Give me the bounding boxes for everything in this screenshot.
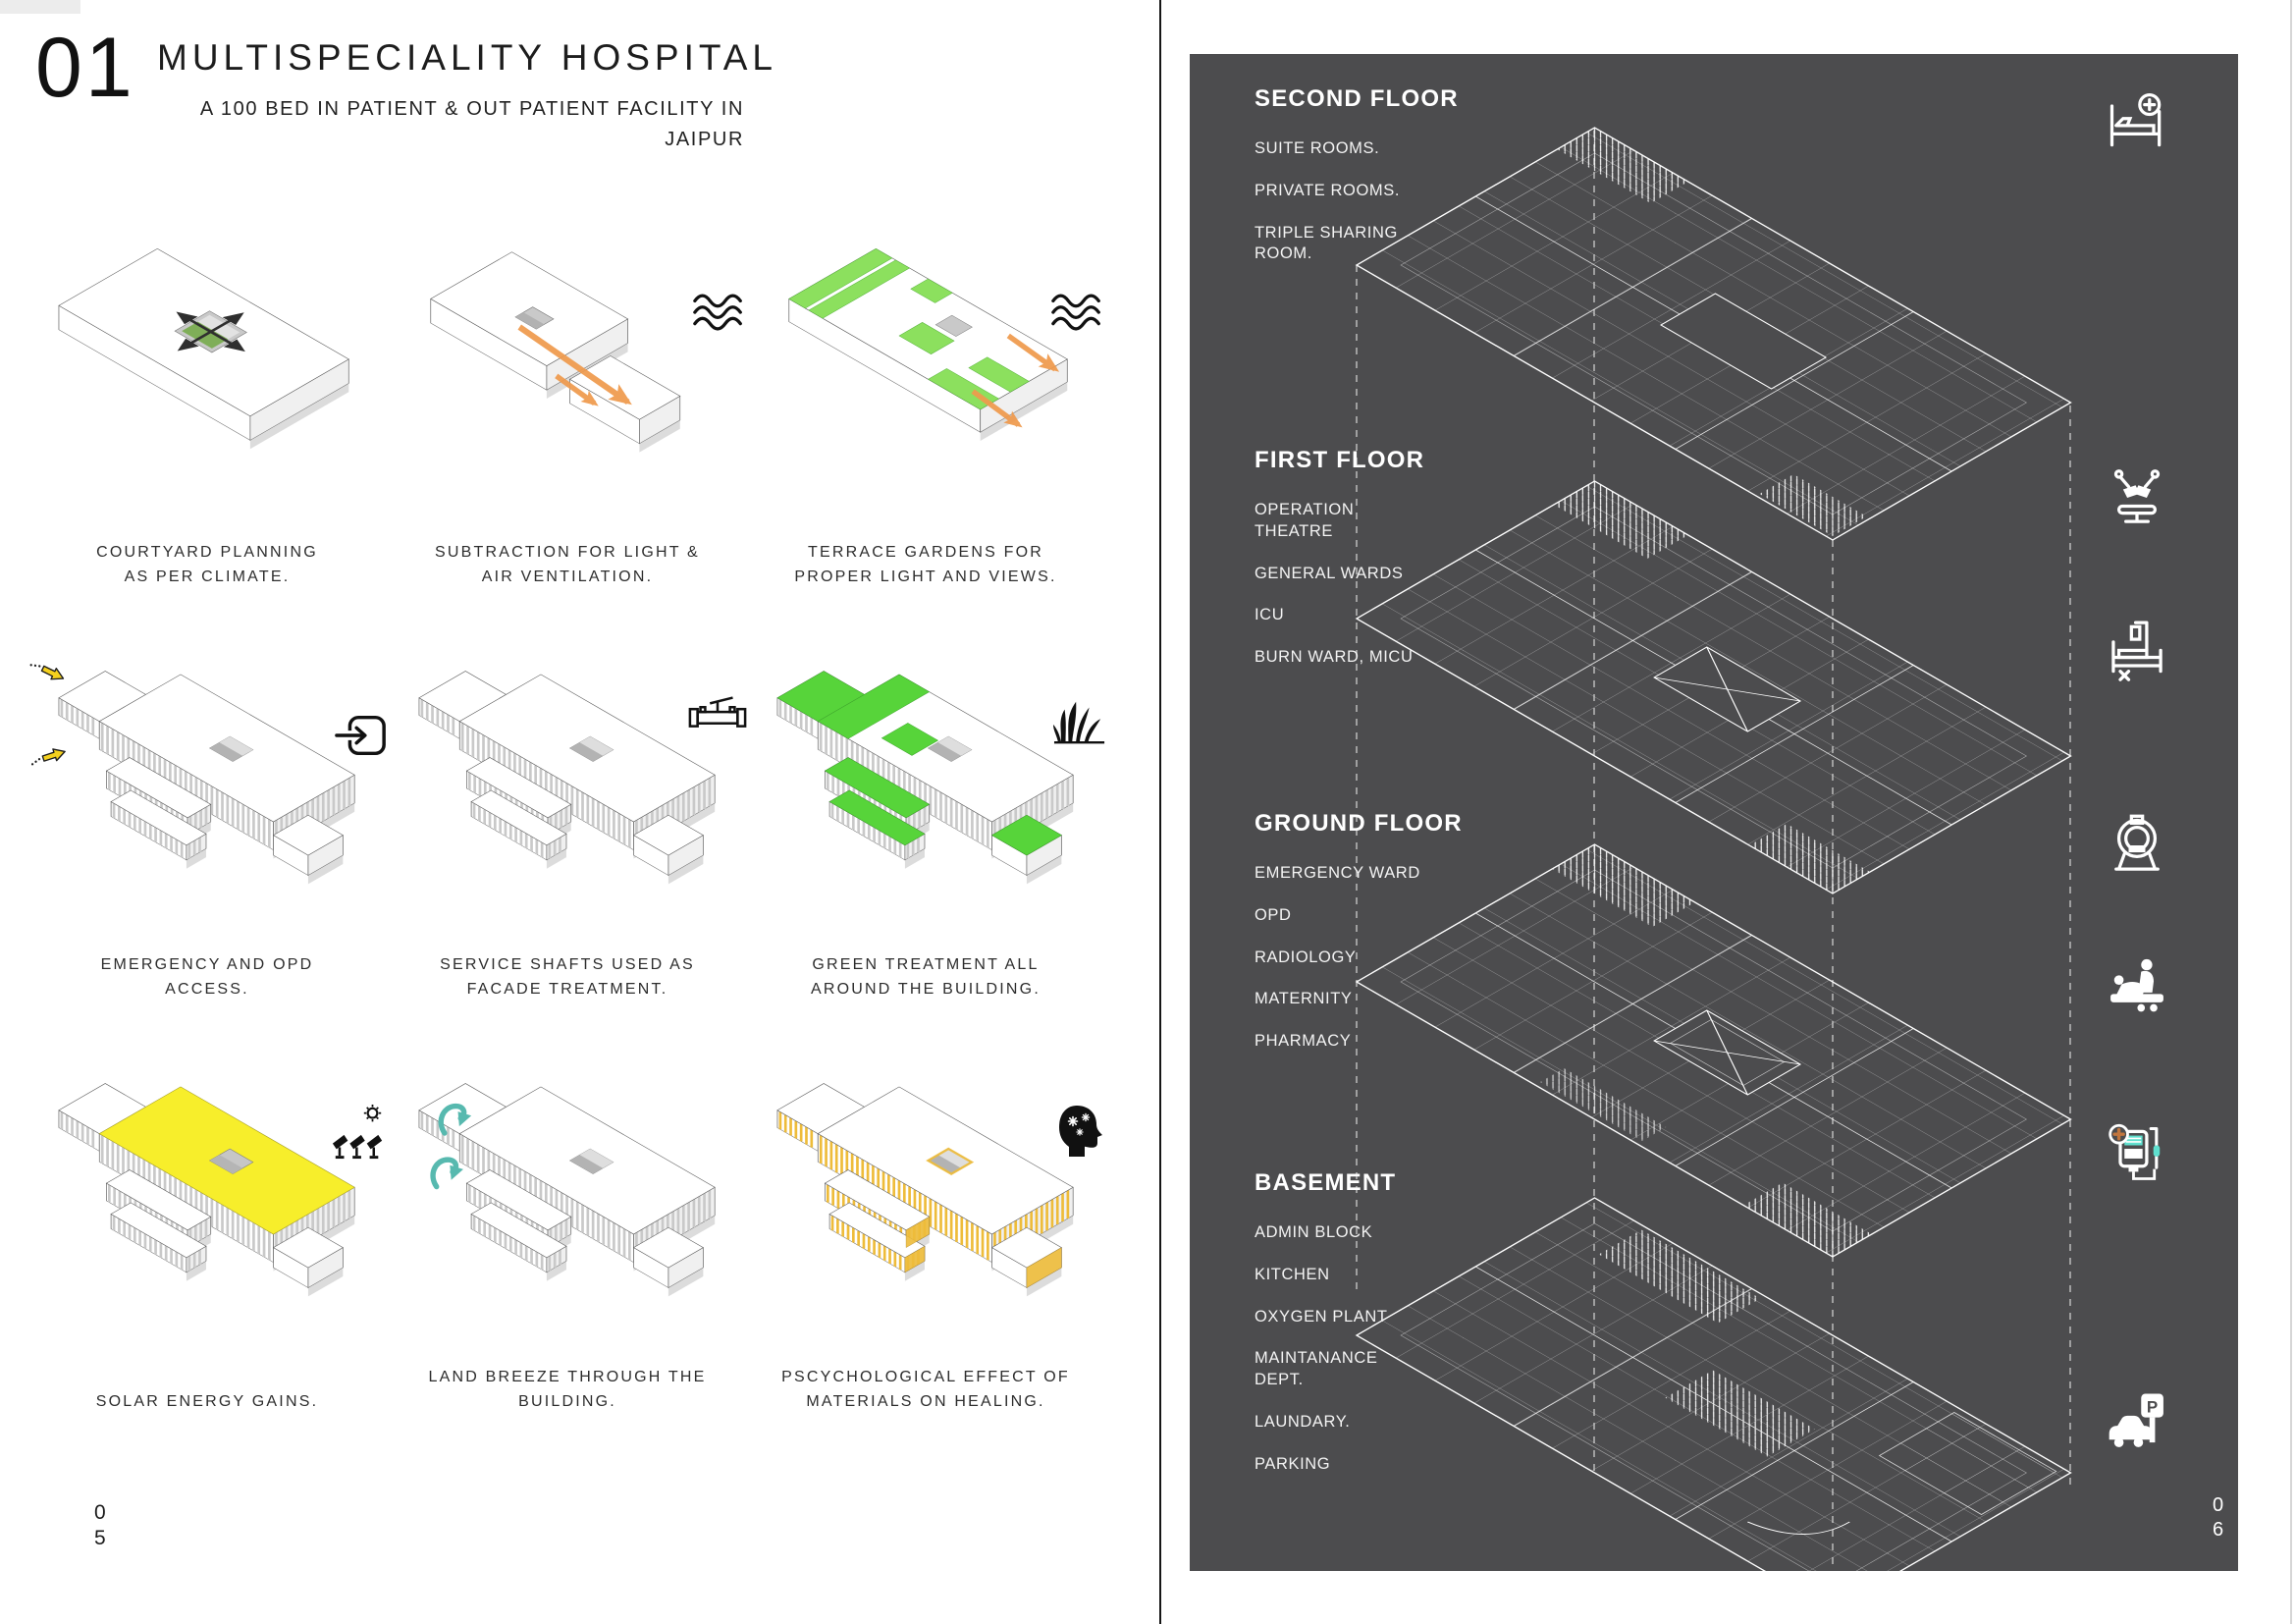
solar-gains-drawing — [28, 1047, 384, 1308]
diagram-service-shafts: SERVICE SHAFTS USED AS FACADE TREATMENT. — [385, 609, 750, 1006]
sun-solar-panels-icon — [329, 1104, 388, 1165]
materials-healing-drawing — [747, 1047, 1102, 1308]
diagram-caption: PSCYCHOLOGICAL EFFECT OF MATERIALS ON HE… — [743, 1366, 1108, 1415]
diagram-caption: GREEN TREATMENT ALL AROUND THE BUILDING. — [743, 953, 1108, 1002]
floor-item: GENERAL WARDS — [1255, 564, 1431, 585]
title-block: MULTISPECIALITY HOSPITAL A 100 BED IN PA… — [157, 37, 744, 155]
exploded-axon-panel: SECOND FLOOR SUITE ROOMS. PRIVATE ROOMS.… — [1190, 54, 2238, 1571]
floor-item: RADIOLOGY — [1255, 947, 1431, 969]
diagram-green-treatment: GREEN TREATMENT ALL AROUND THE BUILDING. — [743, 609, 1108, 1006]
diagram-courtyard-planning: COURTYARD PLANNING AS PER CLIMATE. — [25, 196, 390, 594]
floor-item: MATERNITY — [1255, 989, 1431, 1010]
floor-section-ground: GROUND FLOOR EMERGENCY WARD OPD RADIOLOG… — [1255, 810, 1480, 1073]
floor-item: EMERGENCY WARD — [1255, 863, 1431, 885]
floor-item: TRIPLE SHARING ROOM. — [1255, 223, 1431, 266]
floor-item: SUITE ROOMS. — [1255, 138, 1431, 160]
operation-theatre-light-icon — [2098, 464, 2176, 531]
diagram-solar-gains: SOLAR ENERGY GAINS. — [25, 1021, 390, 1419]
floor-item: PRIVATE ROOMS. — [1255, 181, 1431, 202]
diagram-caption: SERVICE SHAFTS USED AS FACADE TREATMENT. — [385, 953, 750, 1002]
scan-corner-mark — [0, 0, 80, 14]
floor-item: LAUNDARY. — [1255, 1412, 1431, 1434]
floor-item: PHARMACY — [1255, 1031, 1431, 1053]
parking-letter: P — [2147, 1398, 2158, 1417]
page-edge-line — [2290, 0, 2292, 1624]
pipe-valve-icon — [687, 693, 748, 741]
emergency-opd-drawing — [28, 634, 384, 895]
diagram-emergency-opd: EMERGENCY AND OPD ACCESS. — [25, 609, 390, 1006]
floor-title: BASEMENT — [1255, 1169, 1480, 1197]
terrace-gardens-drawing — [747, 222, 1102, 483]
floor-item-list: OPERATION THEATRE GENERAL WARDS ICU BURN… — [1255, 500, 1480, 669]
healing-mind-icon — [1053, 1104, 1106, 1164]
car-parking-icon: P — [2098, 1385, 2176, 1452]
floor-item: OXYGEN PLANT — [1255, 1307, 1431, 1328]
floor-item-list: SUITE ROOMS. PRIVATE ROOMS. TRIPLE SHARI… — [1255, 138, 1480, 265]
floor-item: OPD — [1255, 905, 1431, 927]
floor-section-first: FIRST FLOOR OPERATION THEATRE GENERAL WA… — [1255, 447, 1480, 689]
air-waves-icon — [1049, 291, 1106, 341]
maternity-care-icon — [2098, 949, 2176, 1016]
floor-item-list: ADMIN BLOCK KITCHEN OXYGEN PLANT MAINTAN… — [1255, 1222, 1480, 1475]
page-subtitle: A 100 BED IN PATIENT & OUT PATIENT FACIL… — [157, 94, 744, 155]
presentation-board: 01 MULTISPECIALITY HOSPITAL A 100 BED IN… — [0, 0, 2296, 1624]
infusion-pump-icon — [2098, 1120, 2176, 1187]
floor-title: SECOND FLOOR — [1255, 85, 1480, 113]
air-waves-icon — [691, 291, 748, 341]
diagram-caption: TERRACE GARDENS FOR PROPER LIGHT AND VIE… — [743, 541, 1108, 590]
icu-bed-icon — [2098, 616, 2176, 682]
page-number-left: 0 5 — [94, 1500, 107, 1552]
land-breeze-drawing — [389, 1047, 744, 1308]
floor-item: ICU — [1255, 605, 1431, 626]
diagram-caption: LAND BREEZE THROUGH THE BUILDING. — [385, 1366, 750, 1415]
floor-section-basement: BASEMENT ADMIN BLOCK KITCHEN OXYGEN PLAN… — [1255, 1169, 1480, 1495]
floor-item-list: EMERGENCY WARD OPD RADIOLOGY MATERNITY P… — [1255, 863, 1480, 1053]
diagram-caption: EMERGENCY AND OPD ACCESS. — [25, 953, 390, 1002]
page-divider — [1159, 0, 1161, 1624]
sheet-index-number: 01 — [35, 26, 135, 110]
diagram-terrace-gardens: TERRACE GARDENS FOR PROPER LIGHT AND VIE… — [743, 196, 1108, 594]
floor-item: BURN WARD, MICU — [1255, 647, 1431, 669]
floor-title: FIRST FLOOR — [1255, 447, 1480, 474]
floor-item: MAINTANANCE DEPT. — [1255, 1348, 1431, 1391]
diagram-caption: SUBTRACTION FOR LIGHT & AIR VENTILATION. — [385, 541, 750, 590]
diagram-caption: COURTYARD PLANNING AS PER CLIMATE. — [25, 541, 390, 590]
grass-icon — [1053, 697, 1106, 751]
hospital-bed-plus-icon — [2098, 89, 2176, 156]
floor-item: OPERATION THEATRE — [1255, 500, 1431, 543]
mri-scanner-icon — [2098, 812, 2176, 879]
floor-section-second: SECOND FLOOR SUITE ROOMS. PRIVATE ROOMS.… — [1255, 85, 1480, 286]
diagram-materials-healing: PSCYCHOLOGICAL EFFECT OF MATERIALS ON HE… — [743, 1021, 1108, 1419]
diagram-land-breeze: LAND BREEZE THROUGH THE BUILDING. — [385, 1021, 750, 1419]
courtyard-planning-drawing — [28, 222, 384, 483]
floor-item: PARKING — [1255, 1454, 1431, 1476]
service-shafts-drawing — [389, 634, 744, 895]
green-treatment-drawing — [747, 634, 1102, 895]
subtraction-drawing — [389, 222, 744, 483]
page-number-right: 0 6 — [2213, 1493, 2224, 1543]
floor-item: ADMIN BLOCK — [1255, 1222, 1431, 1244]
diagram-caption: SOLAR ENERGY GAINS. — [25, 1390, 390, 1415]
floor-title: GROUND FLOOR — [1255, 810, 1480, 838]
floor-item: KITCHEN — [1255, 1265, 1431, 1286]
entry-arrow-icon — [335, 711, 388, 765]
page-title: MULTISPECIALITY HOSPITAL — [157, 37, 744, 79]
diagram-subtraction: SUBTRACTION FOR LIGHT & AIR VENTILATION. — [385, 196, 750, 594]
